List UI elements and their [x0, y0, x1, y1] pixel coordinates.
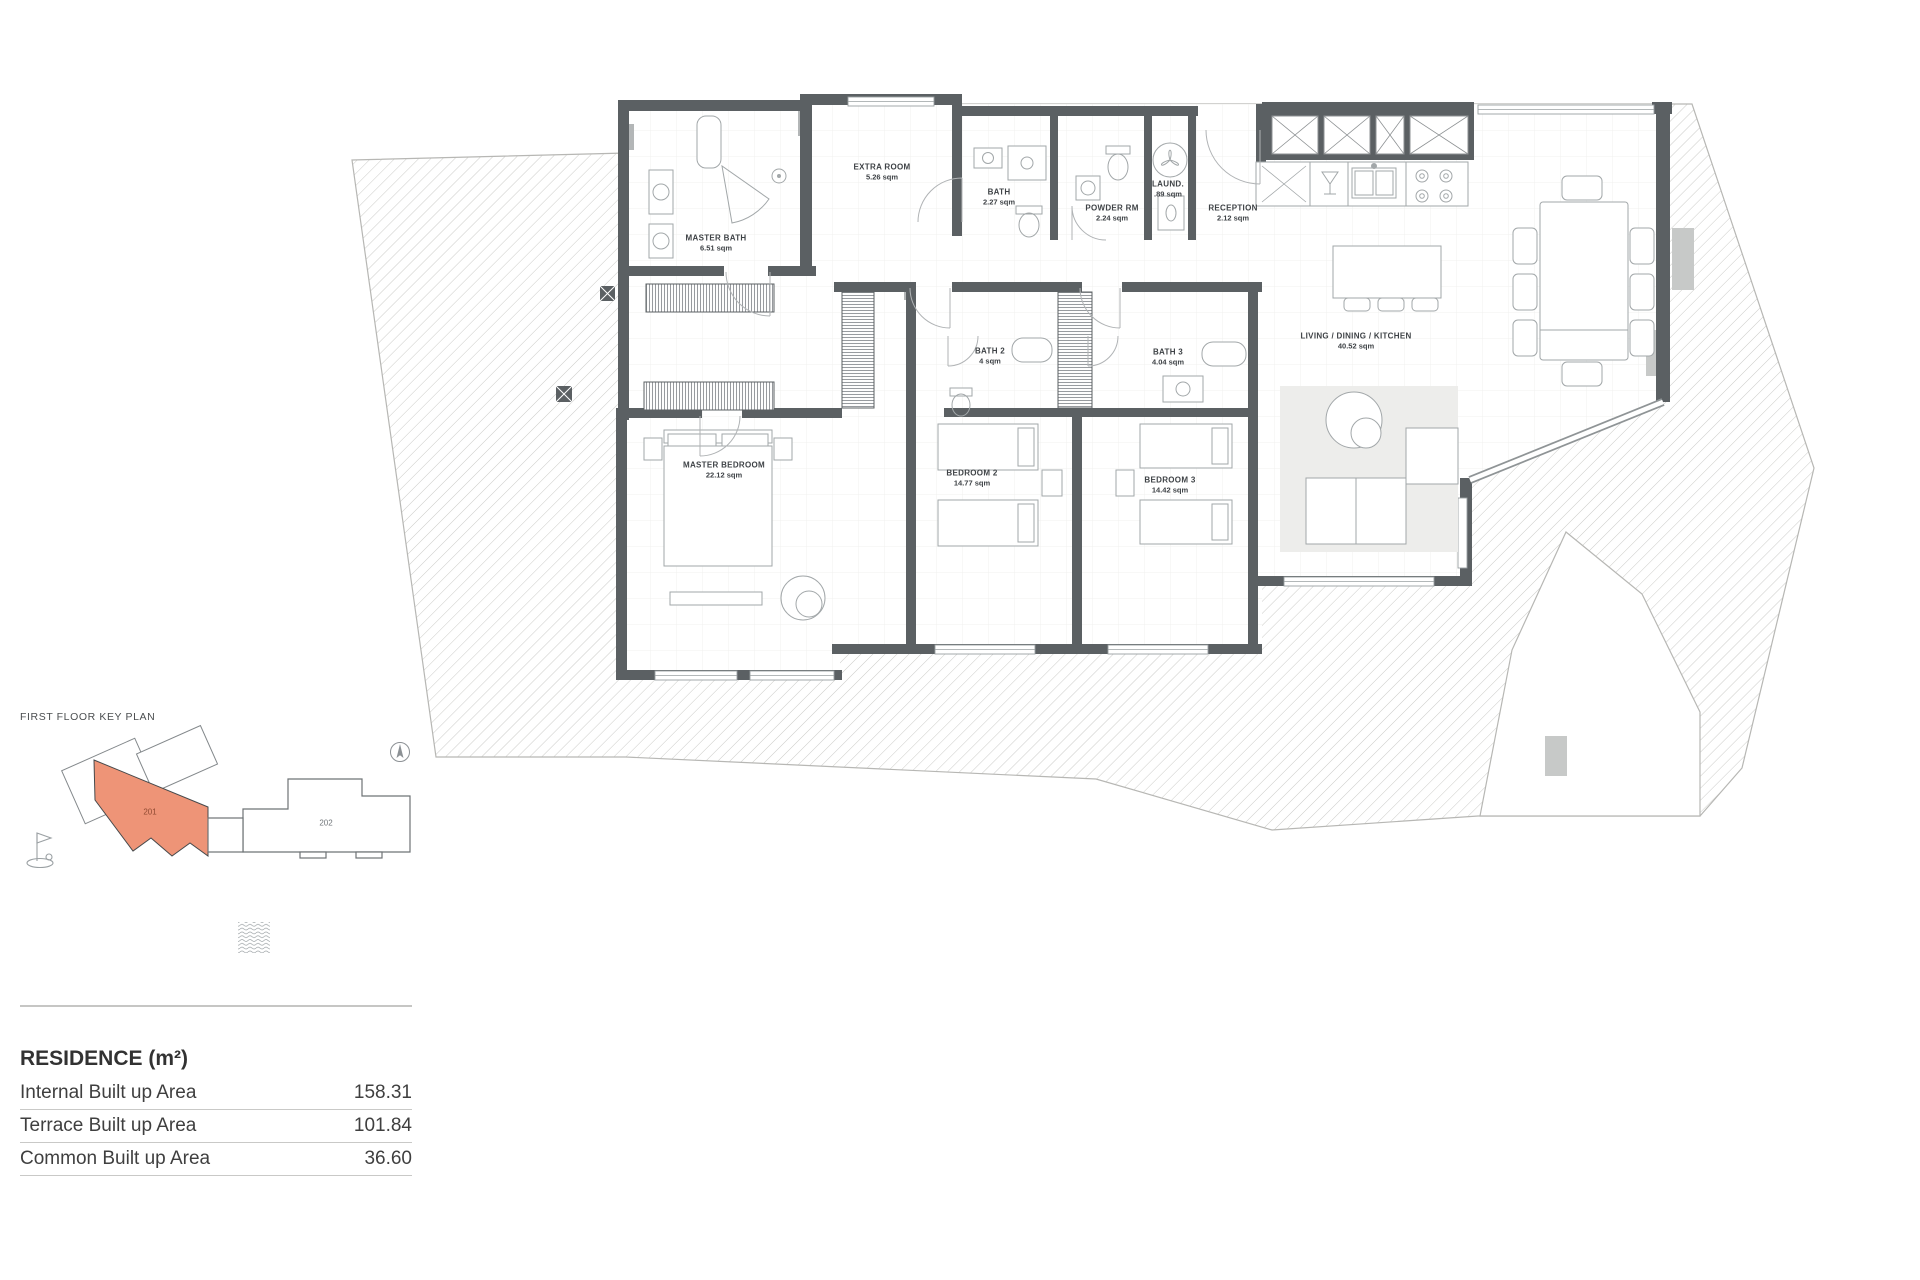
- row-value: 158.31: [354, 1082, 412, 1104]
- nightstand: [1042, 470, 1062, 496]
- dining-chair: [1513, 228, 1537, 264]
- kitchen-upper-cabinets: [1264, 110, 1474, 160]
- stool: [1412, 298, 1438, 311]
- pillow: [1018, 504, 1034, 542]
- table-row-terrace: Terrace Built up Area 101.84: [20, 1110, 412, 1143]
- sink: [974, 148, 1002, 168]
- pillow: [1018, 428, 1034, 466]
- dining-chair: [1630, 320, 1654, 356]
- row-value: 101.84: [354, 1115, 412, 1137]
- bathtub: [1202, 342, 1246, 366]
- nightstand: [644, 438, 662, 460]
- dining-table: [1540, 202, 1628, 360]
- row-label: Internal Built up Area: [20, 1082, 196, 1104]
- dining-chair: [1630, 274, 1654, 310]
- pillow: [1212, 504, 1228, 540]
- nightstand: [774, 438, 792, 460]
- water-waves-icon: [238, 922, 270, 953]
- stool: [1344, 298, 1370, 311]
- nightstand: [1116, 470, 1134, 496]
- toilet: [1106, 146, 1130, 154]
- dining-chair: [1513, 320, 1537, 356]
- sink: [1076, 176, 1100, 200]
- armchair: [1406, 428, 1458, 484]
- dining-chair: [1513, 274, 1537, 310]
- table-row-common: Common Built up Area 36.60: [20, 1143, 412, 1176]
- key-plan-unit-202[interactable]: [208, 779, 410, 858]
- residence-table-title: RESIDENCE (m²): [20, 1047, 412, 1071]
- row-label: Common Built up Area: [20, 1148, 210, 1170]
- dining-chair: [1630, 228, 1654, 264]
- dining-chair: [1562, 362, 1602, 386]
- kitchen-sink: [1352, 168, 1396, 198]
- key-plan-unit-202-label: 202: [319, 819, 332, 828]
- stool: [1378, 298, 1404, 311]
- row-label: Terrace Built up Area: [20, 1115, 196, 1137]
- north-compass-icon: [391, 743, 410, 762]
- row-value: 36.60: [364, 1148, 412, 1170]
- kitchen-island: [1333, 246, 1441, 298]
- shower-tray: [1008, 146, 1046, 180]
- bathtub: [1012, 338, 1052, 362]
- golf-flag-icon: [27, 833, 53, 868]
- round-side-table: [1351, 418, 1381, 448]
- floor-plan-page: MASTER BATH6.51 sqm EXTRA ROOM5.26 sqm B…: [0, 0, 1920, 1280]
- bench: [670, 592, 762, 605]
- key-plan-unit-201-label: 201: [143, 808, 156, 817]
- bed: [664, 446, 772, 566]
- bathtub: [697, 116, 721, 168]
- vanity: [1163, 376, 1203, 402]
- toilet: [950, 388, 972, 396]
- pillow: [1212, 428, 1228, 464]
- table-row-internal: Internal Built up Area 158.31: [20, 1077, 412, 1110]
- residence-area-table: RESIDENCE (m²) Internal Built up Area 15…: [20, 1005, 412, 1176]
- dining-chair: [1562, 176, 1602, 200]
- key-plan-title: FIRST FLOOR KEY PLAN: [20, 711, 155, 723]
- key-plan: [27, 726, 410, 953]
